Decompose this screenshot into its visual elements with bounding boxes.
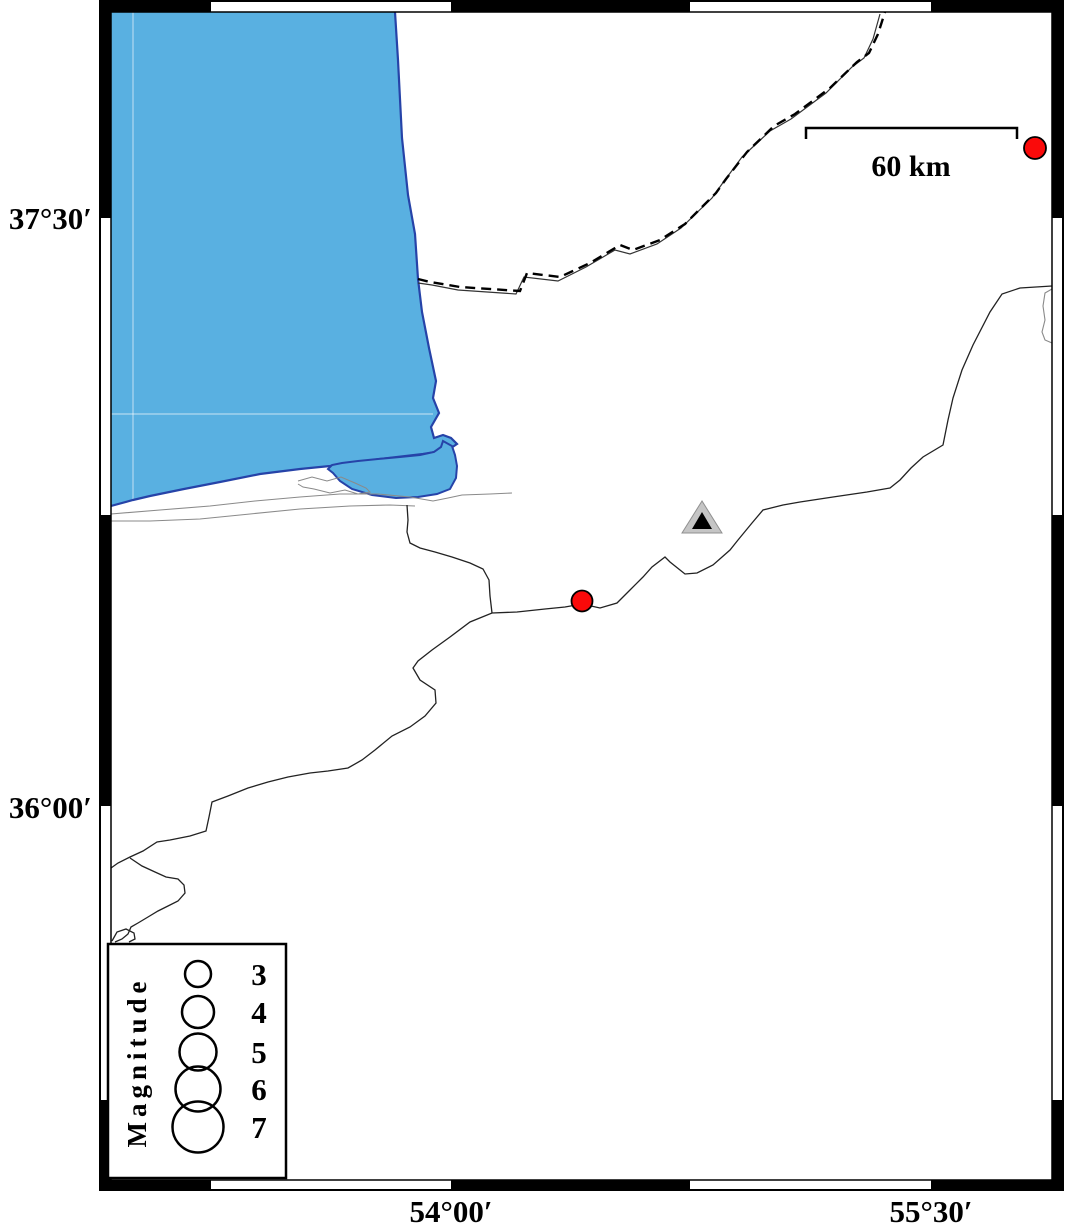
earthquake-marker-1 — [1024, 137, 1046, 159]
border-dashed-line — [418, 12, 885, 291]
border-river-line — [418, 14, 880, 294]
map-canvas: 60 km 37°30′ 36°00′ 54°00′ 55°30′ Magnit… — [0, 0, 1066, 1229]
lat-label-3730: 37°30′ — [9, 201, 92, 236]
map-figure: 60 km 37°30′ 36°00′ 54°00′ 55°30′ Magnit… — [0, 0, 1066, 1229]
station-layer — [682, 501, 722, 533]
earthquake-layer — [572, 137, 1047, 612]
scale-bar: 60 km — [806, 128, 1017, 183]
legend-value-4: 4 — [251, 995, 267, 1030]
earthquake-marker-2 — [572, 591, 593, 612]
legend-value-6: 6 — [251, 1072, 267, 1107]
lon-label-5530: 55°30′ — [889, 1194, 972, 1229]
east-inlet-outline — [1042, 289, 1052, 343]
magnitude-legend: Magnitude 34567 — [108, 944, 286, 1178]
legend-value-7: 7 — [251, 1110, 267, 1145]
lon-label-5400: 54°00′ — [409, 1194, 492, 1229]
river-curl — [112, 929, 135, 942]
sea-polygon — [111, 12, 457, 506]
lat-label-3600: 36°00′ — [9, 790, 92, 825]
legend-title: Magnitude — [122, 976, 152, 1147]
lagoon-outline-1 — [111, 493, 512, 514]
lagoon-outline-2 — [111, 505, 415, 521]
river-from-bay — [407, 505, 492, 613]
legend-value-3: 3 — [251, 957, 267, 992]
scale-bar-label: 60 km — [871, 150, 950, 183]
legend-value-5: 5 — [251, 1035, 267, 1070]
